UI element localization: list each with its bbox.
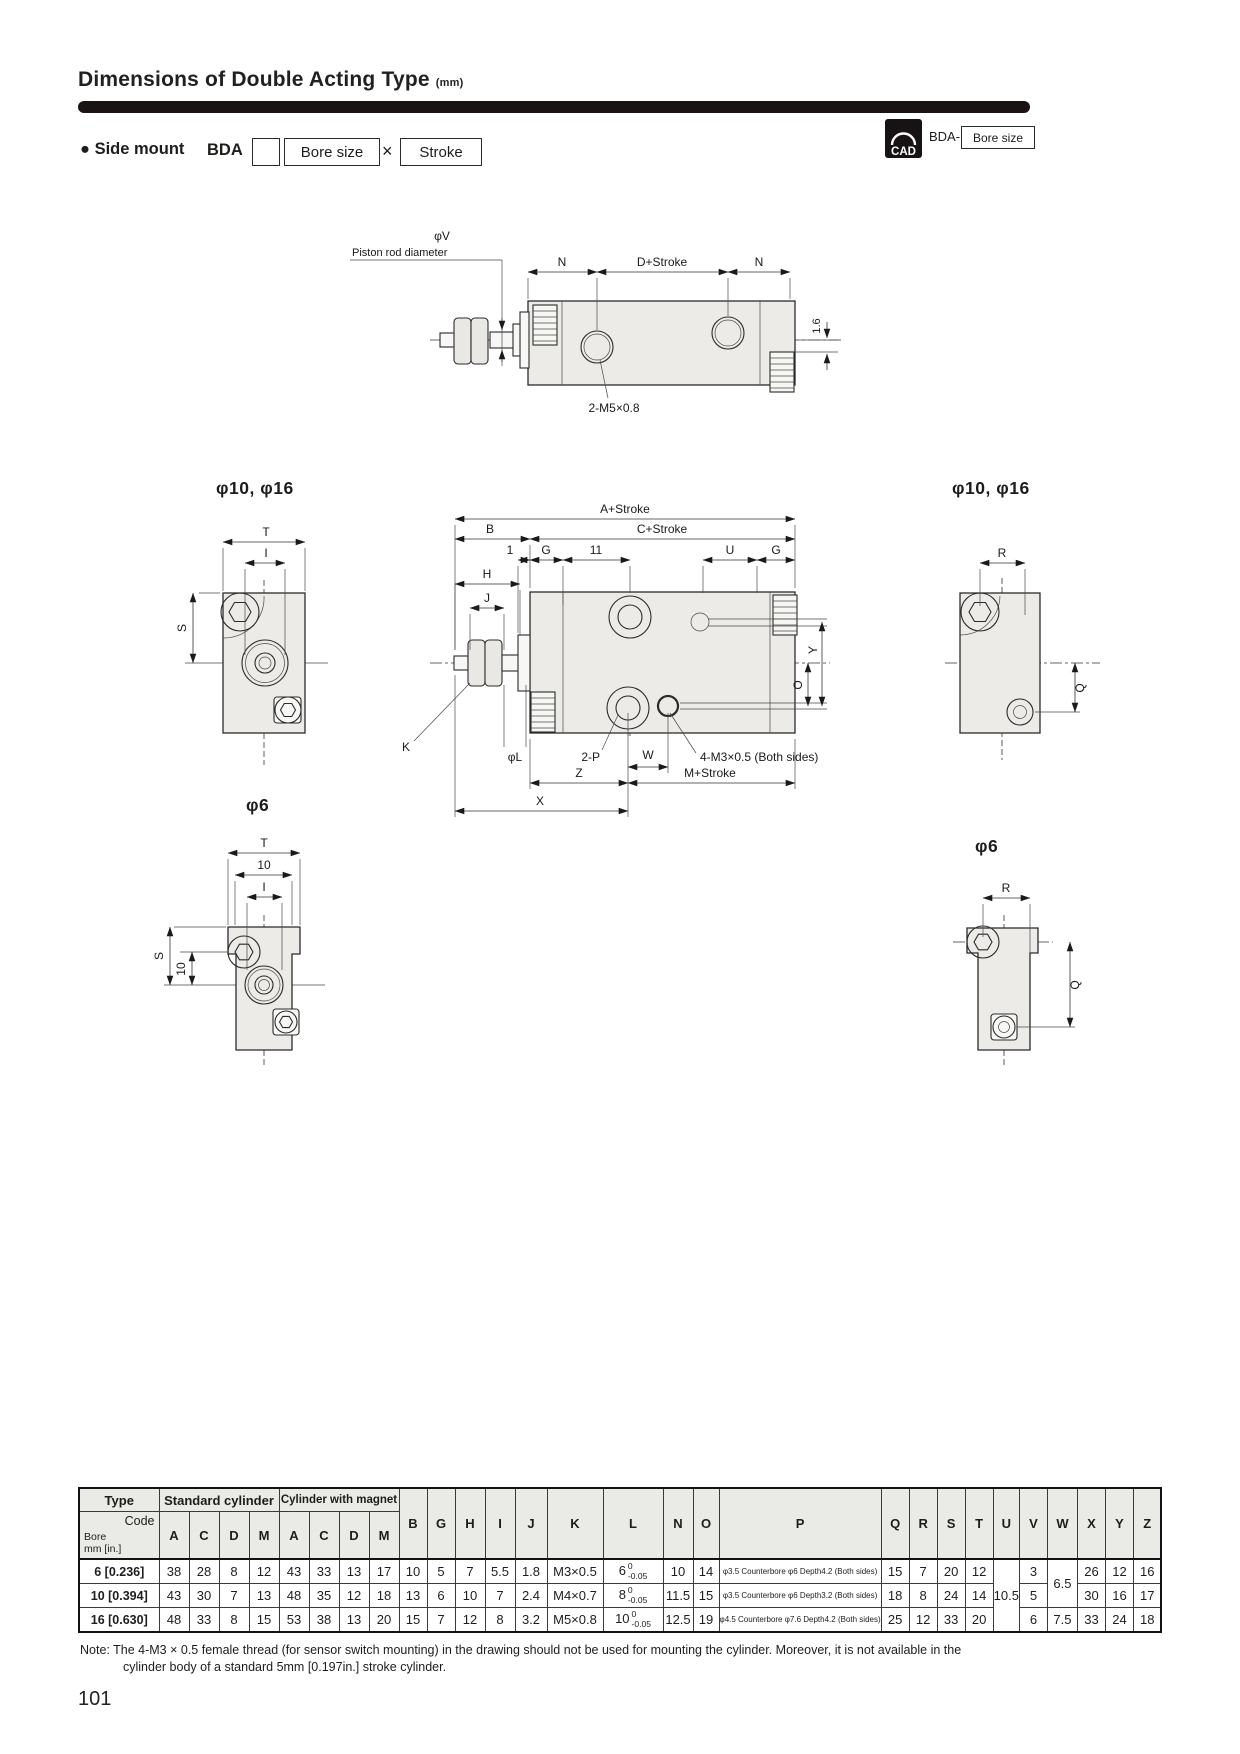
- footnote: Note: The 4-M3 × 0.5 female thread (for …: [80, 1642, 1155, 1676]
- stroke-box: Stroke: [400, 138, 482, 166]
- port-thread-label: 2-M5×0.8: [588, 401, 639, 415]
- l-value-with-tolerance: 80-0.05: [603, 1584, 663, 1608]
- dim-r-label: R: [1002, 881, 1011, 895]
- cylinder-side-body: [530, 592, 795, 733]
- page-title-text: Dimensions of Double Acting Type: [78, 68, 430, 91]
- right-large-title: φ10, φ16: [952, 478, 1030, 499]
- dim-t-label: T: [262, 525, 270, 539]
- subcol-C: C: [189, 1512, 219, 1560]
- dim-k-label: K: [402, 740, 410, 754]
- col-G: G: [427, 1488, 455, 1559]
- right-view-small-drawing: R Q: [945, 865, 1120, 1080]
- right-view-large-drawing: R Q: [940, 520, 1130, 775]
- table-row: 6 [0.236] 3828 812 4333 1317 105 75.5 1.…: [79, 1559, 1161, 1584]
- dim-q-label: Q: [1068, 980, 1082, 989]
- l-value-with-tolerance: 100-0.05: [603, 1608, 663, 1633]
- catalog-page: Dimensions of Double Acting Type(mm) ● S…: [0, 0, 1240, 1754]
- dim-x-label: X: [536, 794, 544, 808]
- front-small-title: φ6: [246, 795, 269, 816]
- header-cylinder-with-magnet: Cylinder with magnet: [279, 1488, 399, 1512]
- col-J: J: [515, 1488, 547, 1559]
- dim-phil-label: φL: [508, 750, 523, 764]
- dim-a-stroke-label: A+Stroke: [600, 502, 650, 516]
- knurl-adjuster: [770, 352, 794, 392]
- dim-g-label: G: [541, 543, 550, 557]
- header-code-bore-corner: Code Boremm [in.]: [79, 1512, 159, 1560]
- col-O: O: [693, 1488, 719, 1559]
- rod-nuts: [468, 640, 502, 686]
- bore-16: 16 [0.630]: [79, 1608, 159, 1633]
- page-number: 101: [78, 1688, 111, 1711]
- bore-10: 10 [0.394]: [79, 1584, 159, 1608]
- subcol-D2: D: [339, 1512, 369, 1560]
- dim-b-label: B: [486, 522, 494, 536]
- header-type: Type: [79, 1488, 159, 1512]
- note-label: Note:: [80, 1643, 110, 1657]
- side-view-drawing: A+Stroke B C+Stroke 1 G 11 U G H J K φL …: [390, 445, 835, 840]
- dim-j-label: J: [484, 591, 490, 605]
- table-header-row-1: Type Standard cylinder Cylinder with mag…: [79, 1488, 1161, 1512]
- col-V: V: [1019, 1488, 1047, 1559]
- rod-tip: [454, 656, 468, 670]
- l-value-with-tolerance: 60-0.05: [603, 1559, 663, 1584]
- dim-n-label: N: [558, 255, 567, 269]
- rod-nuts: [454, 318, 488, 364]
- cad-label: CAD: [891, 146, 916, 158]
- cylinder-right-body: [960, 593, 1040, 733]
- dim-t-label: T: [260, 836, 268, 850]
- model-code: BDA: [207, 141, 243, 160]
- subcol-A: A: [159, 1512, 189, 1560]
- piston-rod: [502, 655, 520, 671]
- w-row3-value: 7.5: [1047, 1608, 1077, 1633]
- dim-d-stroke-label: D+Stroke: [637, 255, 688, 269]
- dim-u-label: U: [726, 543, 735, 557]
- dim-s-label: S: [152, 952, 166, 960]
- bore-size-box: Bore size: [284, 138, 380, 166]
- subcol-A2: A: [279, 1512, 309, 1560]
- w-merged-value: 6.5: [1047, 1559, 1077, 1608]
- corner-code-label: Code: [125, 1514, 155, 1528]
- dim-n-label: N: [755, 255, 764, 269]
- sensor-thread-label: 4-M3×0.5 (Both sides): [700, 750, 818, 764]
- col-Z: Z: [1133, 1488, 1161, 1559]
- col-X: X: [1077, 1488, 1105, 1559]
- dim-2p-label: 2-P: [581, 750, 600, 764]
- col-W: W: [1047, 1488, 1077, 1559]
- col-Q: Q: [881, 1488, 909, 1559]
- page-title-unit: (mm): [436, 77, 464, 89]
- corner-bore-label: Boremm [in.]: [84, 1531, 121, 1555]
- dim-w-label: W: [642, 748, 654, 762]
- col-L: L: [603, 1488, 663, 1559]
- col-U: U: [993, 1488, 1019, 1559]
- dim-g-label: G: [771, 543, 780, 557]
- dim-y-label: Y: [806, 646, 820, 654]
- dim-m-stroke-label: M+Stroke: [684, 766, 736, 780]
- col-T: T: [965, 1488, 993, 1559]
- header-standard-cylinder: Standard cylinder: [159, 1488, 279, 1512]
- col-N: N: [663, 1488, 693, 1559]
- bullet-icon: ●: [80, 140, 90, 158]
- dim-11-label: 11: [590, 543, 603, 557]
- front-large-title: φ10, φ16: [216, 478, 294, 499]
- dim-r-label: R: [998, 546, 1007, 560]
- dim-q-label: Q: [1073, 683, 1087, 692]
- dim-phiv-label: φV: [434, 229, 450, 243]
- mount-code-box: [252, 138, 280, 166]
- dim-o-label: O: [791, 680, 805, 689]
- rod-flange: [520, 312, 529, 368]
- dimension-table: Type Standard cylinder Cylinder with mag…: [78, 1487, 1162, 1633]
- col-P: P: [719, 1488, 881, 1559]
- col-R: R: [909, 1488, 937, 1559]
- knurl-adjuster: [531, 692, 555, 732]
- dim-i-label: I: [262, 880, 265, 894]
- subcol-D: D: [219, 1512, 249, 1560]
- col-Y: Y: [1105, 1488, 1133, 1559]
- col-H: H: [455, 1488, 485, 1559]
- col-B: B: [399, 1488, 427, 1559]
- dim-10-label: 10: [174, 962, 188, 976]
- rod-flange: [518, 635, 530, 691]
- rod-tip: [440, 333, 455, 347]
- cad-icon: CAD: [884, 118, 924, 160]
- col-K: K: [547, 1488, 603, 1559]
- subcol-C2: C: [309, 1512, 339, 1560]
- times-separator: ×: [382, 141, 393, 162]
- front-view-large-drawing: T I S: [150, 520, 400, 785]
- u-merged-value: 10.5: [993, 1559, 1019, 1632]
- right-small-title: φ6: [975, 836, 998, 857]
- cylinder-body: [528, 301, 795, 385]
- footnote-line1: Note: The 4-M3 × 0.5 female thread (for …: [80, 1642, 1155, 1659]
- dim-s-label: S: [175, 624, 189, 632]
- subcol-M2: M: [369, 1512, 399, 1560]
- cad-model-prefix: BDA-: [929, 129, 960, 144]
- dim-h-label: H: [483, 567, 492, 581]
- dim-16-label: 1.6: [811, 318, 823, 333]
- dim-1-label: 1: [507, 543, 514, 557]
- knurl-adjuster: [773, 595, 797, 635]
- piston-rod-group: [454, 635, 530, 691]
- footnote-line2: cylinder body of a standard 5mm [0.197in…: [80, 1659, 1155, 1676]
- side-mount-text: Side mount: [95, 140, 185, 158]
- piston-rod-group: [440, 312, 529, 368]
- col-S: S: [937, 1488, 965, 1559]
- col-I: I: [485, 1488, 515, 1559]
- subcol-M: M: [249, 1512, 279, 1560]
- dim-c-stroke-label: C+Stroke: [637, 522, 688, 536]
- front-view-small-drawing: T 10 I S 10: [140, 830, 400, 1075]
- title-rule-bar: [78, 101, 1030, 113]
- cad-bore-size-box: Bore size: [961, 126, 1035, 149]
- knurl-adjuster: [533, 305, 557, 345]
- bore-6: 6 [0.236]: [79, 1559, 159, 1584]
- dim-z-label: Z: [575, 766, 582, 780]
- dim-10-label: 10: [257, 858, 271, 872]
- top-view-drawing: φV Piston rod diameter N D+Stroke N 1.6 …: [330, 218, 850, 423]
- page-title: Dimensions of Double Acting Type(mm): [78, 68, 463, 92]
- dim-i-label: I: [264, 546, 267, 560]
- side-mount-label: ● Side mount: [80, 140, 184, 159]
- piston-rod-label: Piston rod diameter: [352, 247, 448, 259]
- cylinder-body-group: [528, 301, 795, 392]
